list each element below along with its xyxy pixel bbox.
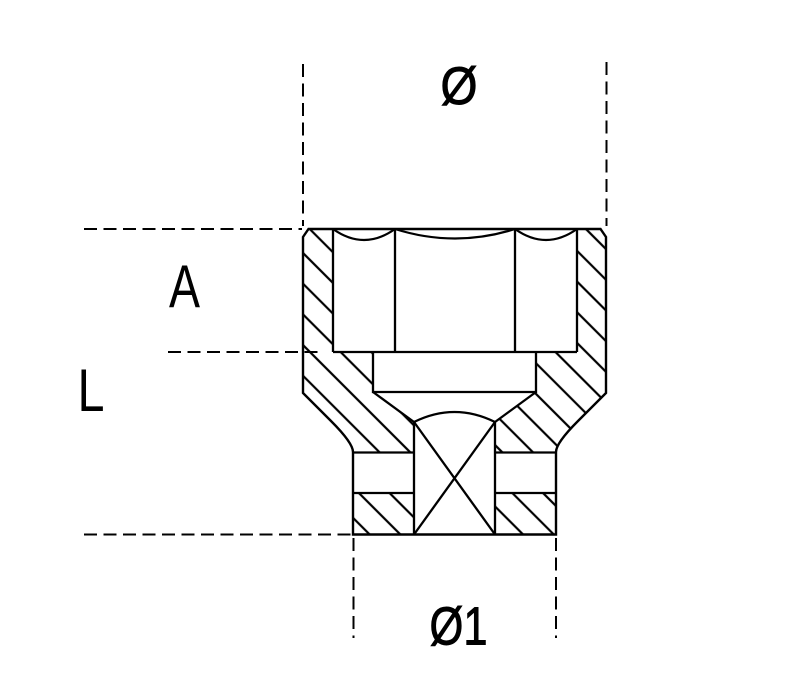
svg-text:A: A <box>169 253 200 320</box>
svg-text:L: L <box>78 357 105 424</box>
svg-text:Ø1: Ø1 <box>430 597 488 657</box>
svg-text:Ø: Ø <box>441 57 478 116</box>
